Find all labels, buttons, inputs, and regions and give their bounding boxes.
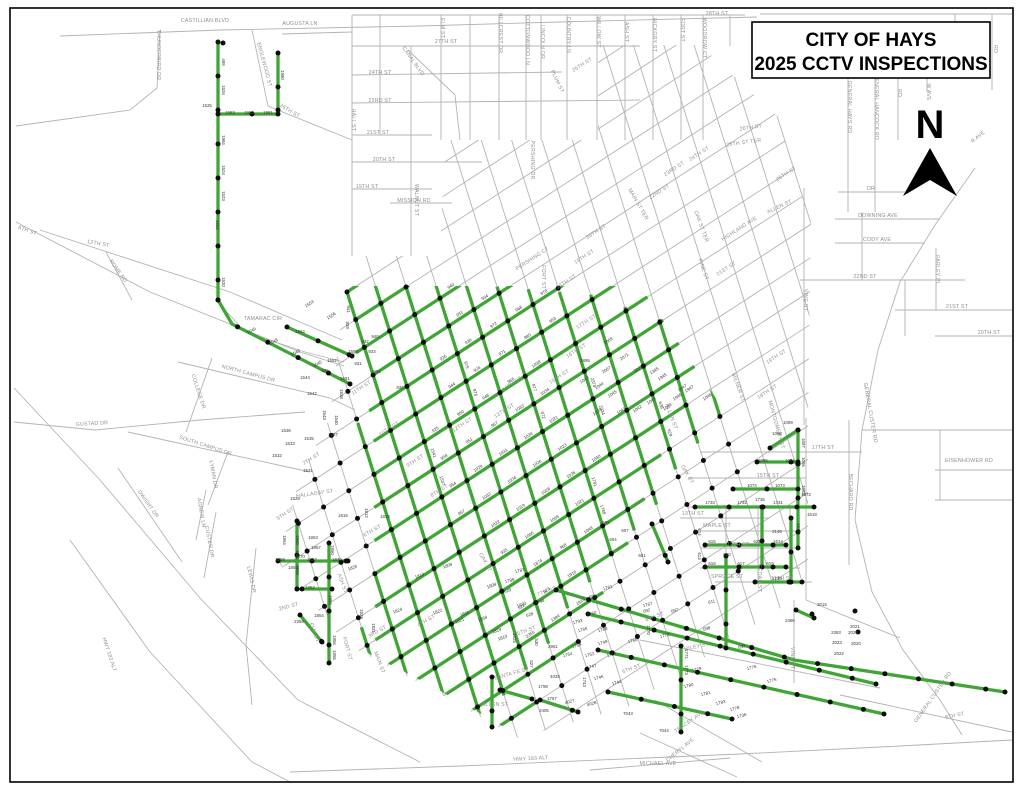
road-label: FARLEY PL (934, 255, 940, 285)
manhole-dot (735, 469, 740, 474)
road-label: HALL ST (350, 109, 356, 132)
manhole-dot (216, 298, 221, 303)
road-label: HWY 183 ALT (101, 637, 118, 673)
green-segment (659, 319, 698, 443)
segment-id-label: 1089 (783, 420, 793, 425)
manhole-dot (549, 457, 554, 462)
manhole-dot (800, 580, 805, 585)
manhole-dot (784, 543, 789, 548)
manhole-dot (431, 467, 436, 472)
segment-id-label: 1819 (491, 626, 502, 634)
manhole-dot (313, 576, 318, 581)
manhole-dot (731, 487, 736, 492)
manhole-dot (724, 588, 729, 593)
manhole-dot (726, 442, 731, 447)
manhole-dot (466, 677, 471, 682)
road-label: 12TH ST (727, 542, 750, 548)
segment-id-label: 1520 (221, 277, 226, 287)
manhole-dot (684, 502, 689, 507)
manhole-dot (381, 599, 386, 604)
manhole-dot (423, 538, 428, 543)
manhole-dot (583, 468, 588, 473)
road-line (218, 302, 344, 362)
segment-id-label: 7043 (623, 711, 633, 716)
road-label: HICKORY ST (651, 18, 657, 53)
manhole-dot (430, 367, 435, 372)
road-label: VINE ST (789, 647, 795, 670)
manhole-dot (396, 356, 401, 361)
manhole-dot (539, 330, 544, 335)
manhole-dot (796, 460, 801, 465)
manhole-dot (432, 566, 437, 571)
segment-id-label: 1945 (657, 372, 668, 382)
segment-id-label: 1736 (736, 712, 747, 720)
manhole-dot (608, 452, 613, 457)
manhole-dot (446, 323, 451, 328)
manhole-dot (439, 494, 444, 499)
manhole-dot (363, 444, 368, 449)
road-line (160, 0, 698, 213)
road-label: WALNUT ST (413, 184, 419, 217)
segment-id-label: 1732 (737, 500, 747, 505)
manhole-dot (609, 551, 614, 556)
segment-id-label: 2071 (619, 352, 630, 362)
road-line (221, 58, 759, 407)
manhole-dot (796, 496, 801, 501)
manhole-dot (672, 704, 677, 709)
segment-id-label: 1850 (330, 545, 335, 555)
segment-id-label: 1540 (334, 415, 339, 425)
road-label: GUSTAD DR (76, 420, 109, 428)
manhole-dot (390, 627, 395, 632)
manhole-dot (768, 446, 773, 451)
segment-id-label: 2358 (294, 619, 304, 624)
segment-id-label: 2146 (772, 529, 782, 534)
manhole-dot (474, 605, 479, 610)
manhole-dot (398, 555, 403, 560)
segment-id-label: 1556 (326, 311, 337, 321)
road-label: HWY 183 ALT (513, 755, 549, 763)
segment-id-label: 1981 (263, 110, 273, 115)
manhole-dot (548, 357, 553, 362)
manhole-dot (327, 661, 332, 666)
segment-id-label: 629 (666, 428, 673, 437)
segment-id-label: 1345 (649, 366, 660, 376)
manhole-dot (448, 522, 453, 527)
segment-id-label: 1529 (290, 496, 300, 501)
manhole-dot (515, 445, 520, 450)
road-label: ENGLEWOOD ST (255, 42, 273, 88)
segment-id-label: 629 (503, 587, 512, 594)
manhole-dot (530, 697, 535, 702)
manhole-dot (346, 488, 351, 493)
manhole-dot (221, 41, 226, 46)
manhole-dot (564, 313, 569, 318)
segment-id-label: 1617 (796, 523, 801, 533)
manhole-dot (784, 565, 789, 570)
manhole-dot (705, 711, 710, 716)
north-arrow: N (903, 103, 957, 196)
segment-id-label: 1757 (547, 696, 557, 701)
road-label: OAK ST TER (692, 210, 709, 243)
manhole-dot (330, 587, 335, 592)
segment-id-label: 1761 (602, 584, 613, 592)
road-label: CANAL BLVD (400, 46, 425, 78)
segment-id-label: 1808 (486, 581, 497, 589)
manhole-dot (710, 486, 715, 491)
manhole-dot (660, 618, 665, 623)
segment-id-label: 1865 (295, 565, 300, 575)
manhole-dot (558, 584, 563, 589)
manhole-dot (330, 532, 335, 537)
manhole-dot (321, 505, 326, 510)
manhole-dot (296, 355, 301, 360)
manhole-dot (617, 479, 622, 484)
segment-id-label: 1982 (244, 110, 254, 115)
segment-id-label: 2386 (785, 618, 795, 623)
manhole-dot (679, 644, 684, 649)
segment-id-label: 1855 (332, 650, 337, 660)
manhole-dot (567, 611, 572, 616)
manhole-dot (379, 400, 384, 405)
segment-id-label: 1983 (225, 110, 235, 115)
segment-id-label: 1810 (497, 633, 508, 641)
segment-id-label: 1086 (801, 457, 806, 467)
road-label: MICHAEL AVE (640, 761, 677, 767)
manhole-dot (399, 654, 404, 659)
map-frame (10, 8, 1013, 782)
road-label: 13TH ST (682, 511, 705, 517)
segment-id-label: 1824 (392, 606, 403, 614)
manhole-dot (736, 569, 741, 574)
green-segment (376, 543, 628, 707)
road-label: 22ND ST (853, 274, 877, 280)
manhole-dot (514, 346, 519, 351)
manhole-dot (650, 391, 655, 396)
street-network (14, 14, 1012, 783)
manhole-dot (718, 513, 723, 518)
manhole-dot (596, 648, 601, 653)
road-label: BECHARD RD (847, 473, 853, 510)
segment-id-label: 4028 (586, 700, 597, 708)
segment-id-label: 977 (531, 383, 538, 392)
segment-id-label: 620 (723, 552, 731, 557)
segment-id-label: 1858 (275, 557, 285, 562)
segment-id-label: 1984 (221, 135, 226, 145)
manhole-dot (322, 604, 327, 609)
segment-id-label: 1733 (705, 500, 715, 505)
segment-id-label: 1798 (538, 684, 548, 689)
road-label: 27TH ST (435, 39, 458, 45)
segment-id-label: 617 (737, 561, 745, 566)
manhole-dot (298, 613, 303, 618)
road-line (655, 700, 762, 762)
manhole-dot (639, 697, 644, 702)
segment-id-label: 597 (670, 607, 679, 614)
green-segment (625, 307, 676, 469)
segment-id-label: 1864 (282, 535, 287, 545)
map-canvas[interactable]: CASTILLIAN BLVDAUGUSTA LNTHUNDERBIRD DRE… (0, 0, 1024, 791)
manhole-dot (751, 652, 756, 657)
manhole-dot (492, 660, 497, 665)
manhole-dot (447, 423, 452, 428)
road-label: SOUTH CAMPUS DR (178, 435, 232, 458)
manhole-dot (327, 609, 332, 614)
manhole-dot (666, 560, 671, 565)
manhole-dot (634, 535, 639, 540)
manhole-dot (643, 562, 648, 567)
manhole-dot (354, 417, 359, 422)
manhole-dot (794, 608, 799, 613)
segment-id-label: 598 (702, 625, 711, 632)
segment-id-label: 1745 (593, 674, 604, 682)
segment-id-label: 1863 (308, 535, 318, 540)
road-line (204, 3, 742, 352)
manhole-dot (380, 500, 385, 505)
manhole-dot (346, 559, 351, 564)
manhole-dot (717, 635, 722, 640)
road-label: ELM ST (308, 622, 321, 644)
manhole-dot (550, 556, 555, 561)
manhole-dot (983, 687, 988, 692)
segment-id-label: 1533 (285, 441, 295, 446)
road-line (259, 108, 478, 791)
segment-id-label: 2393 (831, 630, 841, 635)
manhole-dot (606, 690, 611, 695)
road-label: 20TH ST (978, 330, 1001, 336)
segment-id-label: 1743 (582, 677, 587, 687)
manhole-dot (711, 585, 716, 590)
manhole-dot (718, 644, 723, 649)
road-label: 18TH ST (555, 273, 578, 291)
manhole-dot (730, 717, 735, 722)
manhole-dot (465, 478, 470, 483)
manhole-dot (505, 318, 510, 323)
manhole-dot (458, 649, 463, 654)
manhole-dot (490, 709, 495, 714)
manhole-dot (795, 692, 800, 697)
manhole-dot (642, 463, 647, 468)
manhole-dot (566, 512, 571, 517)
segment-id-label: 604 (609, 537, 617, 542)
manhole-dot (828, 699, 833, 704)
manhole-dot (387, 328, 392, 333)
segment-id-label: 618 (708, 561, 716, 566)
manhole-dot (659, 518, 664, 523)
manhole-dot (532, 501, 537, 506)
segment-id-label: 932 (361, 339, 369, 344)
road-label: 7TH ST (302, 451, 322, 467)
road-line (40, 230, 342, 340)
segment-id-label: 1778 (729, 705, 740, 713)
manhole-dot (624, 308, 629, 313)
road-line (855, 168, 975, 735)
segment-id-label: 1749 (597, 639, 608, 647)
road-label: THUNDERBIRD DR (155, 30, 161, 80)
manhole-dot (327, 643, 332, 648)
manhole-dot (685, 636, 690, 641)
segment-id-label: 1731 (773, 500, 783, 505)
manhole-dot (216, 176, 221, 181)
road-label: R AVE (970, 130, 986, 145)
road-label: VINE ST (802, 289, 808, 312)
manhole-dot (576, 710, 581, 715)
segment-id-label: 940 (371, 334, 379, 339)
map-title-line2: 2025 CCTV INSPECTIONS (754, 54, 987, 75)
manhole-dot (509, 716, 514, 721)
segment-id-label: 2020 (851, 641, 861, 646)
road-label: GENERAL HANCOCK RD (873, 74, 879, 140)
manhole-dot (559, 683, 564, 688)
road-label: 23RD ST (368, 98, 392, 104)
segment-id-label: 1860 (295, 535, 300, 545)
road-label: FORT ST (341, 636, 353, 661)
manhole-dot (679, 712, 684, 717)
road-label: MAIN ST TER (626, 188, 649, 222)
manhole-dot (457, 550, 462, 555)
segment-id-label: 1783 (715, 699, 726, 707)
segment-id-label: 1815 (338, 513, 348, 518)
segment-id-label: 1854 (314, 613, 324, 618)
manhole-dot (540, 429, 545, 434)
road-label: ALLEN ST (766, 199, 793, 216)
manhole-dot (685, 601, 690, 606)
segment-id-label: 931 (354, 361, 362, 366)
segment-id-label: 1867 (311, 545, 321, 550)
manhole-dot (378, 301, 383, 306)
manhole-dot (489, 362, 494, 367)
road-label: GENERAL HAYS RD (846, 81, 852, 134)
road-label: 24TH ST (369, 70, 392, 76)
manhole-dot (405, 483, 410, 488)
manhole-dot (296, 521, 301, 526)
road-label: COUNTRY LN (565, 17, 571, 53)
road-line (486, 0, 705, 657)
manhole-dot (389, 527, 394, 532)
manhole-dot (651, 491, 656, 496)
manhole-dot (480, 335, 485, 340)
manhole-dot (438, 395, 443, 400)
manhole-dot (633, 435, 638, 440)
manhole-dot (591, 396, 596, 401)
manhole-dot (404, 284, 409, 289)
road-label: MAPLE ST (703, 523, 731, 529)
manhole-dot (372, 472, 377, 477)
segment-id-label: 1852 (305, 585, 315, 590)
manhole-dot (874, 682, 879, 687)
manhole-dot (353, 317, 358, 322)
manhole-dot (517, 644, 522, 649)
road-label: COTTONWOOD LN (524, 15, 530, 65)
manhole-dot (810, 612, 815, 617)
manhole-dot (662, 662, 667, 667)
road-line (70, 540, 292, 783)
segment-id-label: 939 (345, 321, 350, 329)
segment-id-label: 2021 (850, 624, 860, 629)
manhole-dot (616, 380, 621, 385)
manhole-dot (216, 112, 221, 117)
segment-id-label: 1861 (295, 550, 300, 560)
manhole-dot (558, 484, 563, 489)
manhole-dot (853, 609, 858, 614)
manhole-dot (432, 666, 437, 671)
road-label: 21ST ST (946, 304, 969, 310)
manhole-dot (455, 351, 460, 356)
road-label: 8TH ST (17, 225, 38, 237)
road-label: ALLEN ST (482, 702, 509, 708)
manhole-dot (276, 85, 281, 90)
segment-id-label: 1618 (807, 512, 817, 517)
segment-id-label: 1614 (773, 539, 783, 544)
manhole-dot (728, 677, 733, 682)
manhole-dot (692, 430, 697, 435)
segment-id-label: 614 (697, 528, 702, 536)
manhole-dot (849, 666, 854, 671)
manhole-dot (475, 704, 480, 709)
segment-id-label: 1554 (295, 329, 305, 334)
segment-id-label: 1538 (339, 389, 344, 399)
manhole-dot (372, 571, 377, 576)
segment-id-label: 1543 (322, 410, 327, 420)
segment-id-label: 1551 (340, 376, 350, 381)
segment-id-label: 605 (602, 520, 610, 525)
road-line (282, 32, 352, 34)
road-label: FORT ST (679, 18, 685, 42)
manhole-dot (565, 413, 570, 418)
manhole-dot (316, 338, 321, 343)
segment-id-label: 1536 (281, 428, 291, 433)
manhole-dot (415, 610, 420, 615)
road-label: PINE ST (696, 258, 709, 281)
road-line (840, 695, 1012, 732)
road-line (740, 740, 1012, 754)
segment-id-label: 601 (638, 553, 646, 558)
manhole-dot (619, 607, 624, 612)
segment-id-label: 936 (396, 385, 404, 390)
road-label: 9TH ST (406, 453, 426, 469)
segment-id-label: 1531 (303, 468, 313, 473)
manhole-dot (498, 489, 503, 494)
manhole-dot (355, 516, 360, 521)
manhole-dot (761, 685, 766, 690)
manhole-dot (305, 549, 310, 554)
manhole-dot (482, 533, 487, 538)
road-label: 20TH ST (373, 157, 396, 163)
manhole-dot (626, 606, 631, 611)
segment-id-label: 1535 (304, 436, 314, 441)
manhole-dot (524, 473, 529, 478)
manhole-dot (338, 461, 343, 466)
manhole-dot (216, 142, 221, 147)
segment-id-label: 1730 (772, 576, 782, 581)
road-label: GENERAL CUSTER RD (862, 382, 878, 443)
road-label: 17TH ST (812, 445, 835, 451)
manhole-dot (1003, 690, 1008, 695)
manhole-dot (703, 543, 708, 548)
road-label: 12TH ST (451, 416, 474, 434)
manhole-dot (327, 575, 332, 580)
segment-id-label: 1768 (597, 626, 608, 634)
manhole-dot (796, 487, 801, 492)
manhole-dot (285, 325, 290, 330)
road-line (352, 473, 890, 791)
manhole-dot (815, 661, 820, 666)
manhole-dot (534, 699, 539, 704)
manhole-dot (500, 688, 505, 693)
segment-id-label: 1780 (683, 682, 694, 690)
road-label: LEWIS DR (245, 566, 257, 594)
manhole-dot (677, 574, 682, 579)
